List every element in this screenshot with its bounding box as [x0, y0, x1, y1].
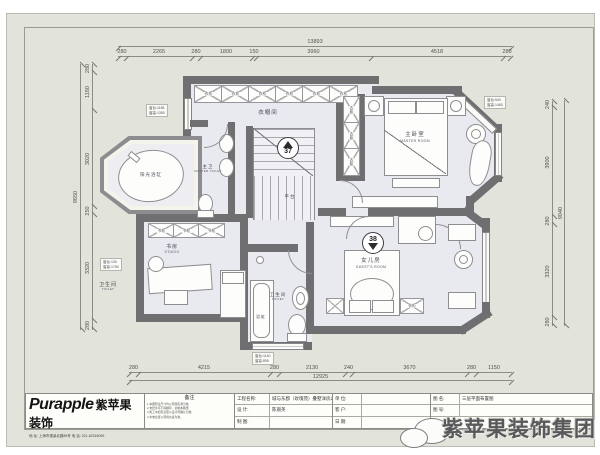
down-arrow-icon: [368, 243, 378, 250]
balcony-table-center: [459, 255, 468, 264]
wardrobe-cell: 衣柜: [221, 85, 250, 103]
wardrobe-cell: 衣柜: [343, 122, 360, 150]
title-block-fields-b: 单 位: 客 户: 日 期:: [332, 394, 430, 428]
wall-segment: [183, 76, 379, 84]
bath-window: [252, 343, 304, 350]
dim-left-overall: 9650: [72, 64, 81, 330]
wc-tank: [287, 333, 307, 342]
notes-line: 4.水电位置以现场交底为准。: [147, 415, 232, 419]
field-value: 三层平面布置图: [460, 396, 496, 402]
title-block-notes-cell: 备注 1.本图所注尺寸均以现场实测为准; 2.未经许可不得翻印、复制本图纸; 3…: [144, 394, 234, 428]
desk-chair: [418, 226, 433, 241]
room-label-daughter: 女儿房 GUEST'S ROOM: [344, 258, 398, 269]
balcony-seat: [448, 224, 476, 241]
floor-plan-sheet: 阳光浴缸 衣柜 衣柜 衣柜 衣柜 衣柜 衣柜 衣柜 衣柜 衣柜 衣帽间 37 主…: [0, 0, 600, 455]
field-label: 图 名:: [431, 394, 460, 404]
nightstand-lamp: [450, 100, 462, 112]
watermark-text: 紫苹果装饰集团: [442, 413, 596, 443]
bookcase-cell: 书柜: [198, 223, 225, 238]
company-address: 地 址: 上海市漕溪北路88号 电 话: 021-62318099: [29, 434, 141, 439]
wall-segment: [246, 126, 253, 218]
stair-marker-down: 38: [362, 232, 384, 254]
wardrobe-cell: 衣柜: [400, 298, 424, 314]
daybed-pillow: [222, 272, 244, 284]
room-label-closet: 衣帽间: [240, 110, 296, 117]
room-label-bath: 卫生间 TOILET: [258, 292, 298, 301]
dim-left-segments: 280 3320 250 3020 1180 280: [84, 64, 93, 330]
room-label-study: 书房 STUDIO: [146, 244, 198, 255]
dim-right-overall: 9040: [556, 100, 565, 326]
notes-title: 备注: [147, 395, 232, 402]
title-block-logo-cell: Purapple紫苹果装饰 地 址: 上海市漕溪北路88号 电 话: 021-6…: [26, 394, 144, 428]
field-label: 工程名称:: [235, 394, 270, 404]
balcony-window: [482, 232, 490, 306]
wardrobe-cell: 衣柜: [248, 85, 277, 103]
wall-segment: [308, 326, 466, 334]
up-arrow-icon: [283, 141, 293, 148]
wall-segment: [306, 222, 314, 334]
wall-segment: [336, 94, 343, 180]
field-label: 设 计:: [235, 405, 270, 415]
bed-pillow: [388, 101, 416, 114]
window-annotation: 窗台:130窗高:1750: [100, 258, 122, 271]
field-label: 制 图:: [235, 417, 270, 428]
field-label: 客 户:: [333, 405, 362, 415]
field-value: 陈丽英: [270, 407, 288, 413]
bed-pillow: [349, 300, 371, 313]
shower-head: [256, 256, 264, 264]
field-label: 单 位:: [333, 394, 362, 404]
window-annotation: 窗台:1140窗高:855: [252, 352, 274, 365]
title-block-fields-a: 工程名称:城与东郡（玫瑰苑）叠墅洋房2F 设 计:陈丽英 制 图:: [234, 394, 332, 428]
window-annotation: 窗台:1185窗高:1350: [146, 104, 168, 117]
wall-segment: [368, 208, 472, 216]
wall-segment: [318, 208, 346, 216]
bed-pillow: [372, 300, 394, 313]
field-value: 城与东郡（玫瑰苑）叠墅洋房2F: [270, 396, 332, 402]
window-annotation: 窗台:540窗高:1460: [484, 96, 506, 109]
bookcase-cell: 书柜: [173, 223, 200, 238]
wall-segment: [136, 214, 144, 322]
bed-pillow: [416, 101, 444, 114]
room-label-sun-tub: 阳光浴缸: [126, 172, 176, 178]
wardrobe-cell: 衣柜: [194, 85, 223, 103]
master-side-window: [495, 132, 502, 176]
dim-top-overall: 13893: [118, 38, 512, 47]
master-sideboard: [352, 196, 438, 208]
bookcase-cell: 书柜: [148, 223, 175, 238]
field-label: 日 期:: [333, 417, 362, 428]
dim-bottom-overall: 12925: [129, 372, 512, 381]
nightstand-lamp: [368, 100, 380, 112]
wardrobe-cell: 衣柜: [343, 148, 360, 176]
wardrobe-cell: 衣柜: [343, 96, 360, 124]
chat-bubble-icon: [400, 428, 428, 448]
nightstand-cell: [326, 298, 344, 314]
wardrobe-cell: 衣柜: [302, 85, 331, 103]
landing-label: 平台: [278, 194, 302, 200]
wardrobe-cell: 衣柜: [275, 85, 304, 103]
wc-tank: [197, 210, 214, 218]
bed-bench: [392, 178, 440, 188]
tub-label: 浴缸: [250, 314, 272, 319]
stair-marker-up: 37: [277, 137, 299, 159]
desk-drawer: [164, 290, 188, 305]
dim-top-segments: 280 2265 280 1800 150 3960 4518 280: [118, 48, 511, 57]
wall-segment: [372, 86, 462, 94]
room-label-master-toilet: 主卫 MASTER TOILET: [186, 164, 230, 173]
balcony-seat: [448, 292, 476, 309]
company-logo: Purapple: [29, 396, 93, 413]
plant-center: [471, 129, 481, 139]
desk-chair: [148, 256, 164, 272]
dim-right-segments: 280 3320 280 3900 240: [544, 101, 553, 326]
room-label-master: 主卧室 MASTER ROOM: [385, 132, 445, 143]
